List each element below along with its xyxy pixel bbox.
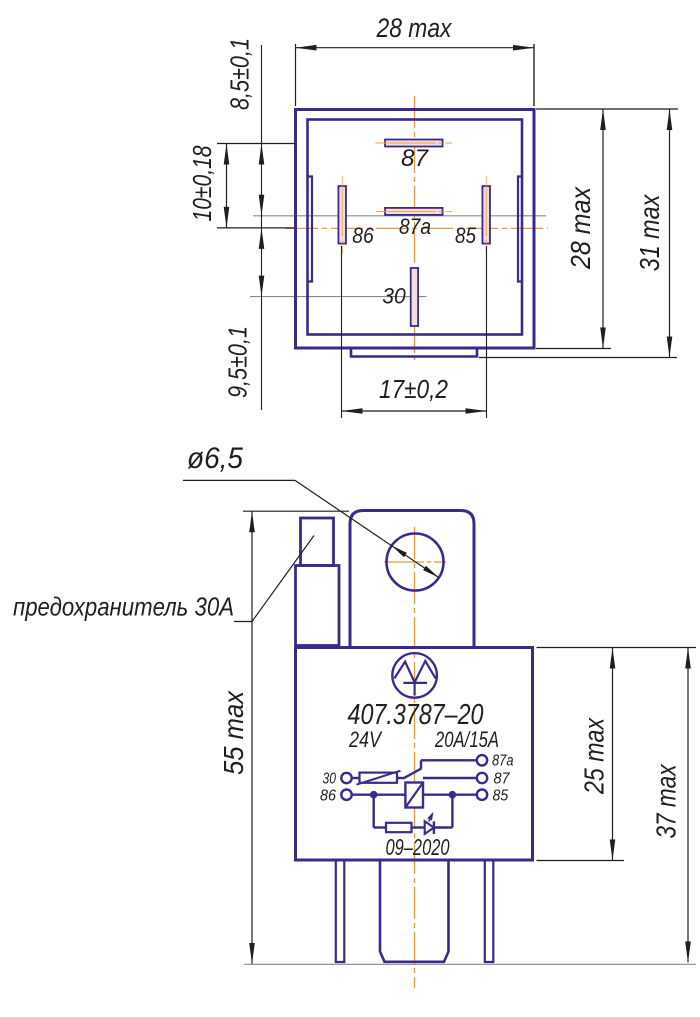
svg-text:10±0,18: 10±0,18 bbox=[187, 145, 217, 221]
svg-text:55 max: 55 max bbox=[218, 690, 249, 775]
svg-text:31 max: 31 max bbox=[634, 194, 665, 271]
svg-text:24V: 24V bbox=[348, 727, 383, 752]
svg-text:8,5±0,1: 8,5±0,1 bbox=[225, 38, 255, 110]
svg-text:ø6,5: ø6,5 bbox=[187, 442, 243, 475]
svg-text:87a: 87a bbox=[492, 753, 514, 770]
svg-text:25 max: 25 max bbox=[579, 717, 610, 795]
svg-text:87: 87 bbox=[494, 771, 511, 788]
svg-text:85: 85 bbox=[455, 223, 477, 248]
svg-text:37 max: 37 max bbox=[651, 764, 682, 839]
svg-text:20A/15A: 20A/15A bbox=[434, 727, 499, 752]
svg-text:предохранитель 30А: предохранитель 30А bbox=[13, 592, 234, 622]
svg-text:9,5±0,1: 9,5±0,1 bbox=[223, 326, 253, 398]
svg-text:30: 30 bbox=[323, 771, 337, 788]
svg-text:28 max: 28 max bbox=[565, 186, 596, 270]
svg-text:86: 86 bbox=[352, 223, 374, 248]
svg-text:87a: 87a bbox=[399, 214, 431, 239]
svg-text:85: 85 bbox=[493, 788, 509, 805]
svg-text:86: 86 bbox=[320, 788, 336, 805]
svg-text:17±0,2: 17±0,2 bbox=[379, 374, 448, 404]
svg-text:87: 87 bbox=[401, 145, 430, 172]
svg-text:30: 30 bbox=[382, 284, 406, 309]
svg-text:09–2020: 09–2020 bbox=[386, 834, 450, 860]
svg-text:28 max: 28 max bbox=[376, 13, 453, 43]
